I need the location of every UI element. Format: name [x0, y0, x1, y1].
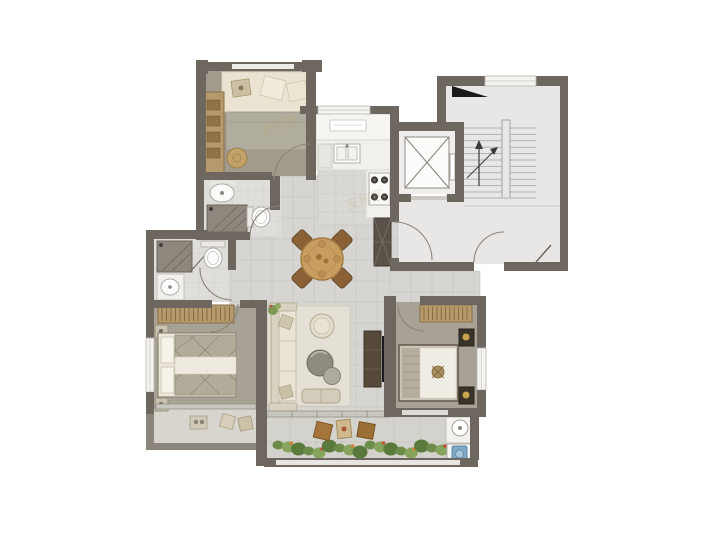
- balcony-tray: [190, 416, 207, 429]
- wall: [504, 262, 568, 271]
- pillow: [286, 80, 308, 102]
- shower-head: [209, 207, 213, 211]
- sink-drain: [220, 191, 224, 195]
- nightstand-lamp: [463, 334, 470, 341]
- pillow: [161, 367, 174, 393]
- wall: [390, 262, 474, 271]
- side-table: [324, 368, 341, 385]
- railing: [150, 443, 260, 450]
- shower: [207, 205, 247, 232]
- wall: [455, 131, 464, 198]
- toilet-bowl: [204, 248, 222, 268]
- place-setting: [319, 271, 326, 278]
- wall: [146, 230, 208, 239]
- armchair-seat: [314, 318, 330, 334]
- place-setting: [319, 241, 326, 248]
- glass-door-west: [156, 404, 256, 409]
- wardrobe-shelf: [207, 100, 220, 110]
- floor-plan-canvas: 安居客安居客: [0, 0, 720, 540]
- window-band: [402, 410, 448, 415]
- floor-plan-svg: 安居客安居客: [0, 0, 720, 540]
- wall: [270, 176, 280, 210]
- table-center: [324, 259, 329, 264]
- bed-runner: [175, 357, 236, 374]
- wall: [196, 60, 206, 180]
- place-setting: [304, 256, 311, 263]
- wall: [146, 230, 154, 308]
- throw-pillow: [279, 385, 294, 400]
- burner-center: [383, 179, 386, 182]
- tray-cup: [200, 420, 204, 424]
- tray-cup: [194, 420, 198, 424]
- bed-foot-blanket: [402, 348, 420, 398]
- wall: [420, 296, 486, 305]
- tv-console: [364, 331, 381, 387]
- wall: [204, 232, 250, 240]
- wardrobe-shelf: [207, 148, 220, 158]
- wall: [146, 300, 212, 308]
- stool: [227, 148, 247, 168]
- faucet: [345, 144, 348, 147]
- window-band: [276, 460, 460, 465]
- place-setting: [334, 256, 341, 263]
- plant-flower: [270, 305, 273, 308]
- floor-cushion: [238, 416, 253, 431]
- wall: [470, 414, 479, 460]
- wall: [306, 64, 316, 180]
- balcony-cushion: [357, 422, 375, 440]
- wall: [447, 194, 464, 202]
- balcony-cushion: [313, 421, 332, 440]
- sofa-armrest: [269, 403, 297, 411]
- wall: [384, 296, 396, 417]
- stair-rail: [502, 120, 510, 198]
- wall: [477, 296, 486, 348]
- wall: [146, 306, 154, 338]
- wall: [228, 238, 236, 270]
- floor-cushion: [220, 414, 236, 430]
- wardrobe-east: [420, 305, 472, 322]
- glass-door-living: [267, 411, 390, 417]
- pillow: [161, 337, 174, 363]
- wall-window: [232, 64, 294, 69]
- wardrobe-shelf: [207, 116, 220, 126]
- nightstand-lamp: [159, 329, 163, 333]
- shower-head: [159, 243, 163, 247]
- wall: [560, 76, 568, 271]
- elevator-panel: [450, 154, 455, 180]
- wall: [394, 122, 464, 131]
- nightstand-lamp: [463, 392, 470, 399]
- appliance: [318, 144, 332, 168]
- decor-tray-dot: [239, 86, 244, 91]
- wall: [240, 300, 267, 308]
- wall: [146, 392, 154, 414]
- laundry-drain: [458, 426, 462, 430]
- toilet-bowl: [252, 207, 270, 227]
- cushion-flower: [342, 427, 347, 432]
- wardrobe-shelf: [207, 132, 220, 142]
- sink-basin: [337, 147, 346, 160]
- wall: [256, 308, 267, 466]
- toilet-tank: [201, 241, 225, 247]
- washer-drum: [456, 450, 464, 458]
- wall: [300, 106, 318, 114]
- dish-tray: [330, 120, 366, 131]
- wall: [437, 76, 446, 126]
- plant-small: [275, 303, 281, 309]
- sink-basin: [348, 147, 357, 160]
- table-center: [316, 254, 322, 260]
- wall: [399, 194, 411, 202]
- wall: [196, 172, 272, 180]
- sink-drain: [168, 285, 172, 289]
- burner-center: [373, 179, 376, 182]
- elevator-door-band: [411, 196, 447, 200]
